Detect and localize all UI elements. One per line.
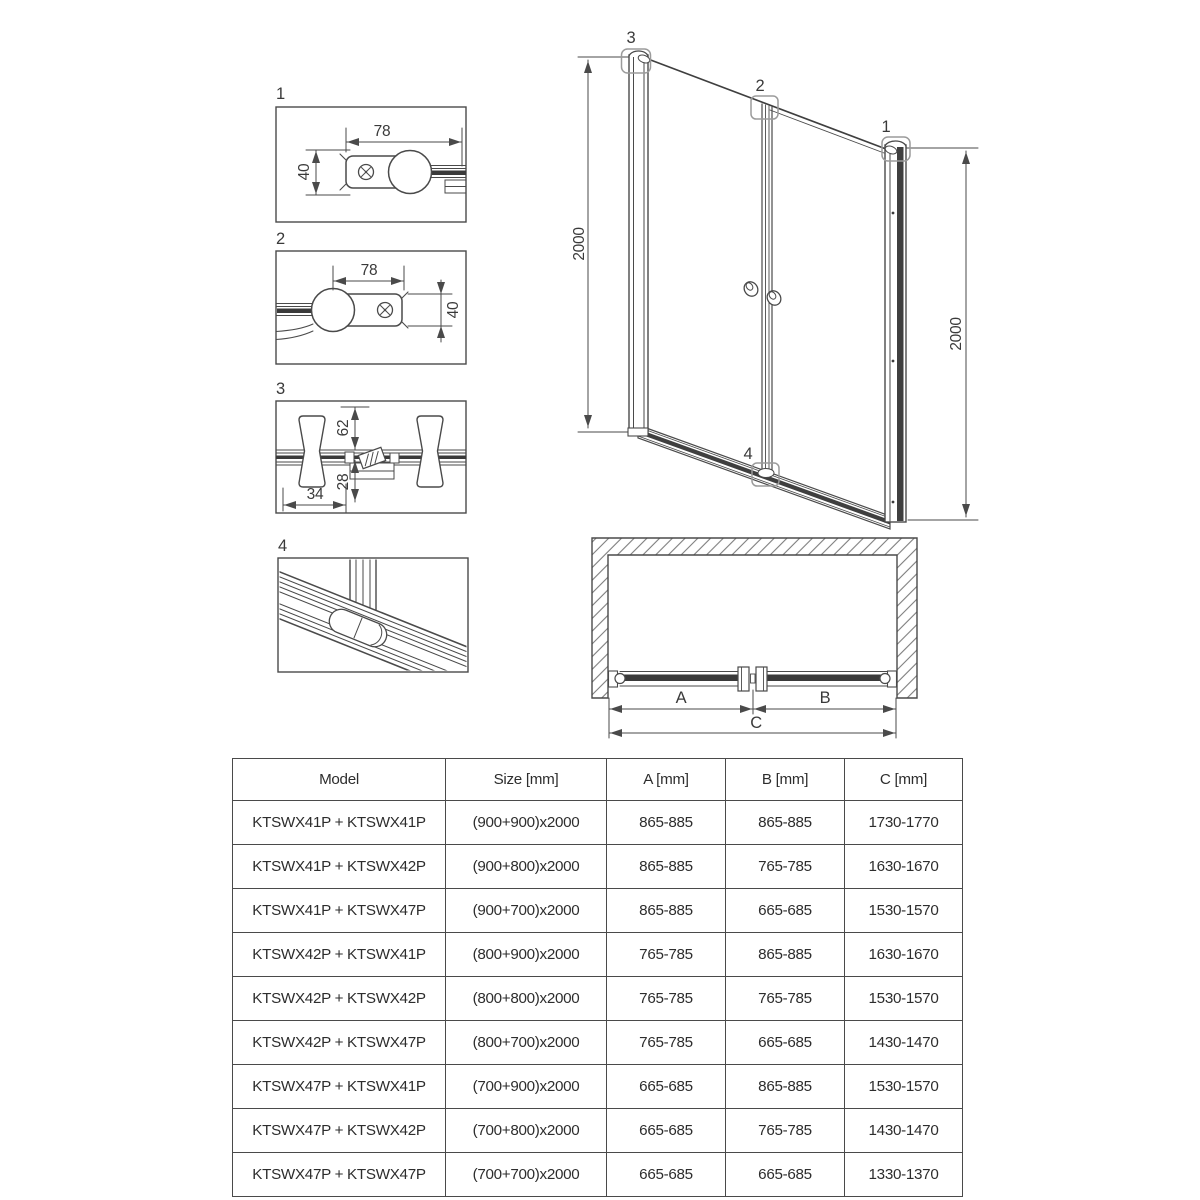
size-cell: (700+900)x2000: [446, 1065, 607, 1109]
c-cell: 1630-1670: [845, 845, 963, 889]
plan-view: A B C: [592, 538, 917, 738]
plan-dim-a-label: A: [676, 689, 687, 707]
a-cell: 665-685: [607, 1109, 726, 1153]
detail-1-label: 1: [276, 85, 285, 103]
c-cell: 1330-1370: [845, 1153, 963, 1197]
size-cell: (900+700)x2000: [446, 889, 607, 933]
model-cell: KTSWX42P + KTSWX47P: [233, 1021, 446, 1065]
model-cell: KTSWX41P + KTSWX41P: [233, 801, 446, 845]
elevation-marker-1: 1: [882, 118, 891, 136]
detail-3-dim-62: 62: [335, 420, 352, 437]
glass-pane-section: [277, 309, 314, 314]
c-cell: 1430-1470: [845, 1109, 963, 1153]
elevation-marker-4: 4: [744, 445, 753, 463]
spec-table: Model Size [mm] A [mm] B [mm] C [mm] KTS…: [232, 758, 963, 1197]
table-row: KTSWX41P + KTSWX47P (900+700)x2000 865-8…: [233, 889, 963, 933]
c-cell: 1530-1570: [845, 977, 963, 1021]
plan-dim-b-label: B: [820, 689, 831, 707]
table-row: KTSWX42P + KTSWX47P (800+700)x2000 765-7…: [233, 1021, 963, 1065]
c-cell: 1430-1470: [845, 1021, 963, 1065]
table-row: KTSWX47P + KTSWX42P (700+800)x2000 665-6…: [233, 1109, 963, 1153]
b-cell: 665-685: [726, 1153, 845, 1197]
b-cell: 865-885: [726, 933, 845, 977]
plan-knob-right: [756, 667, 767, 691]
c-cell: 1530-1570: [845, 1065, 963, 1109]
col-header-size: Size [mm]: [446, 759, 607, 801]
elevation-left-height-dim: 2000: [571, 227, 588, 261]
detail-2-label: 2: [276, 230, 285, 248]
model-cell: KTSWX42P + KTSWX42P: [233, 977, 446, 1021]
col-header-b: B [mm]: [726, 759, 845, 801]
model-cell: KTSWX47P + KTSWX47P: [233, 1153, 446, 1197]
a-cell: 665-685: [607, 1153, 726, 1197]
detail-view-4: 4: [270, 537, 480, 699]
glass-profile-lines: [429, 166, 466, 194]
model-cell: KTSWX41P + KTSWX42P: [233, 845, 446, 889]
detail-view-3: 3: [276, 380, 466, 513]
model-cell: KTSWX42P + KTSWX41P: [233, 933, 446, 977]
b-cell: 865-885: [726, 801, 845, 845]
detail-view-2: 2 78: [276, 230, 466, 364]
detail-1-height-dim: 40: [296, 163, 313, 180]
plan-glass-line: [609, 667, 897, 691]
dimension-right-2000: [906, 148, 978, 520]
b-cell: 865-885: [726, 1065, 845, 1109]
b-cell: 665-685: [726, 1021, 845, 1065]
size-cell: (900+800)x2000: [446, 845, 607, 889]
table-row: KTSWX41P + KTSWX41P (900+900)x2000 865-8…: [233, 801, 963, 845]
table-header-row: Model Size [mm] A [mm] B [mm] C [mm]: [233, 759, 963, 801]
model-cell: KTSWX47P + KTSWX41P: [233, 1065, 446, 1109]
b-cell: 765-785: [726, 1109, 845, 1153]
c-cell: 1630-1670: [845, 933, 963, 977]
size-cell: (900+900)x2000: [446, 801, 607, 845]
glass-pane-section: [429, 171, 466, 176]
table-row: KTSWX41P + KTSWX42P (900+800)x2000 865-8…: [233, 845, 963, 889]
door-knob-section-left: [299, 416, 325, 487]
detail-3-dim-28: 28: [335, 474, 352, 491]
b-cell: 765-785: [726, 845, 845, 889]
table-row: KTSWX47P + KTSWX41P (700+900)x2000 665-6…: [233, 1065, 963, 1109]
elevation-marker-2: 2: [756, 77, 765, 95]
size-cell: (800+900)x2000: [446, 933, 607, 977]
detail-1-width-dim: 78: [374, 123, 391, 140]
right-wall-profile: [884, 141, 906, 522]
elevation-marker-3: 3: [627, 29, 636, 47]
model-cell: KTSWX47P + KTSWX42P: [233, 1109, 446, 1153]
table-row: KTSWX42P + KTSWX42P (800+800)x2000 765-7…: [233, 977, 963, 1021]
a-cell: 865-885: [607, 889, 726, 933]
elevation-view: 2000 2000: [571, 29, 978, 529]
col-header-c: C [mm]: [845, 759, 963, 801]
plan-dim-c-label: C: [750, 714, 762, 732]
detail-3-dim-34: 34: [307, 486, 324, 503]
b-cell: 665-685: [726, 889, 845, 933]
a-cell: 865-885: [607, 845, 726, 889]
a-cell: 765-785: [607, 933, 726, 977]
plan-knob-left: [738, 667, 749, 691]
a-cell: 665-685: [607, 1065, 726, 1109]
elevation-right-height-dim: 2000: [948, 317, 965, 351]
door-knob-section-right: [417, 416, 443, 487]
detail-4-label: 4: [278, 537, 287, 555]
glass-top-edge: [648, 59, 886, 149]
bottom-rail-isometric: [270, 558, 480, 699]
glass-top-edge-inner: [770, 110, 884, 153]
a-cell: 865-885: [607, 801, 726, 845]
left-wall-profile: [628, 51, 651, 436]
a-cell: 765-785: [607, 1021, 726, 1065]
col-header-model: Model: [233, 759, 446, 801]
table-row: KTSWX42P + KTSWX41P (800+900)x2000 765-7…: [233, 933, 963, 977]
size-cell: (700+800)x2000: [446, 1109, 607, 1153]
c-cell: 1730-1770: [845, 801, 963, 845]
model-cell: KTSWX41P + KTSWX47P: [233, 889, 446, 933]
table-row: KTSWX47P + KTSWX47P (700+700)x2000 665-6…: [233, 1153, 963, 1197]
detail-2-height-dim: 40: [445, 301, 462, 318]
technical-drawing-canvas: 1: [0, 0, 1200, 756]
b-cell: 765-785: [726, 977, 845, 1021]
detail-3-label: 3: [276, 380, 285, 398]
col-header-a: A [mm]: [607, 759, 726, 801]
wall-bracket: [340, 151, 432, 194]
size-cell: (700+700)x2000: [446, 1153, 607, 1197]
wall-bracket: [312, 289, 409, 332]
a-cell: 765-785: [607, 977, 726, 1021]
size-cell: (800+700)x2000: [446, 1021, 607, 1065]
size-cell: (800+800)x2000: [446, 977, 607, 1021]
detail-view-1: 1: [276, 85, 466, 222]
c-cell: 1530-1570: [845, 889, 963, 933]
detail-2-width-dim: 78: [361, 262, 378, 279]
